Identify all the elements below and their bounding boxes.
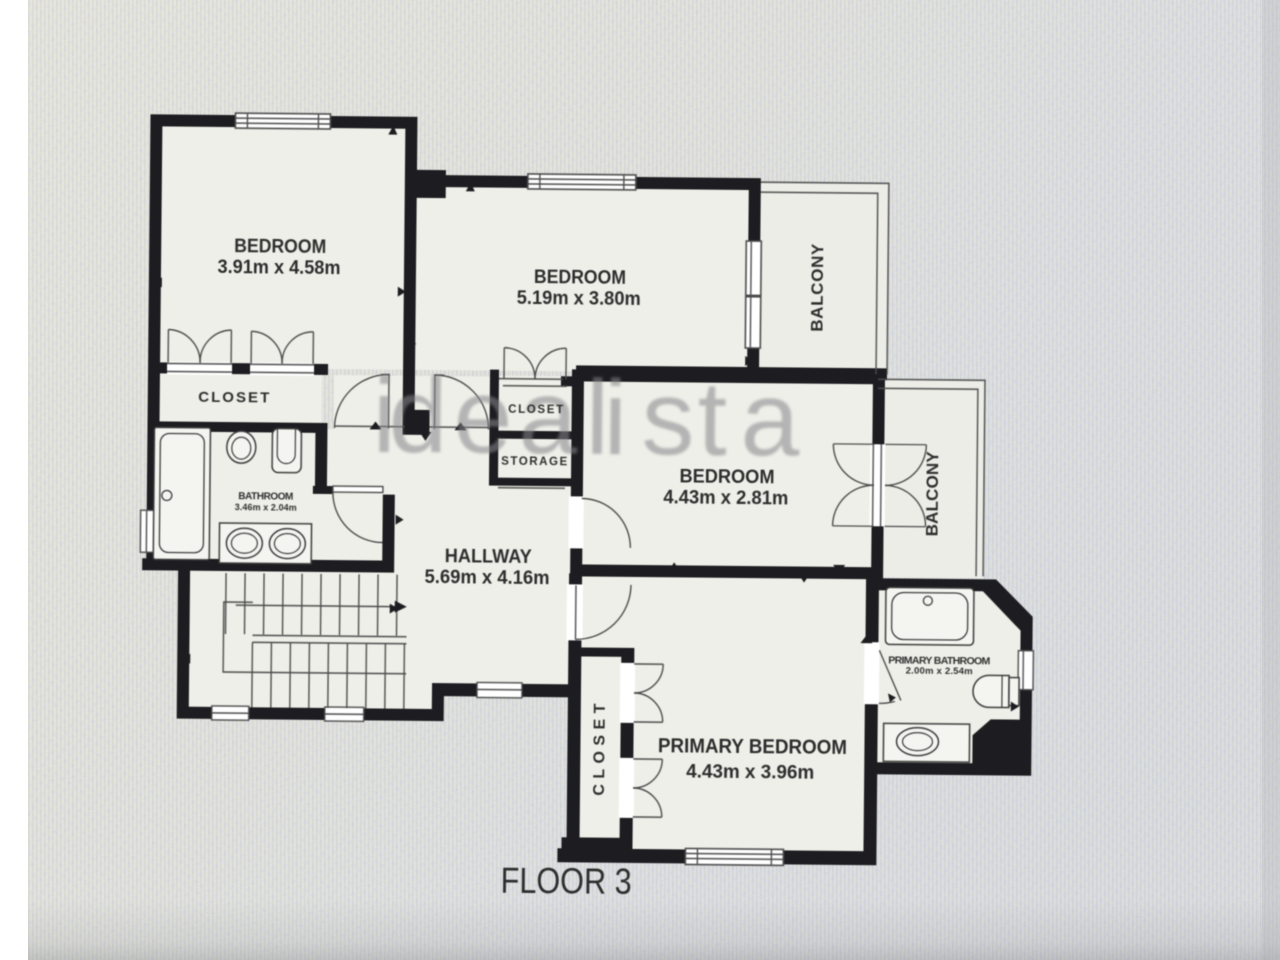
svg-text:BEDROOM: BEDROOM [534, 267, 626, 289]
svg-text:BATHROOM: BATHROOM [238, 491, 293, 503]
svg-text:BALCONY: BALCONY [922, 451, 942, 537]
svg-text:3.46m x 2.04m: 3.46m x 2.04m [235, 502, 297, 513]
svg-text:STORAGE: STORAGE [501, 456, 567, 469]
svg-text:5.19m x 3.80m: 5.19m x 3.80m [517, 288, 641, 310]
svg-text:3.91m x 4.58m: 3.91m x 4.58m [217, 257, 340, 279]
svg-text:4.43m x 3.96m: 4.43m x 3.96m [686, 761, 814, 783]
svg-text:HALLWAY: HALLWAY [445, 546, 533, 568]
svg-text:4.43m x 2.81m: 4.43m x 2.81m [663, 487, 788, 509]
svg-text:2.00m x 2.54m: 2.00m x 2.54m [906, 666, 973, 678]
svg-text:BALCONY: BALCONY [807, 243, 827, 332]
svg-text:5.69m x 4.16m: 5.69m x 4.16m [424, 567, 549, 589]
svg-text:PRIMARY BEDROOM: PRIMARY BEDROOM [658, 735, 847, 759]
svg-text:BEDROOM: BEDROOM [679, 466, 774, 488]
svg-text:BEDROOM: BEDROOM [234, 236, 326, 258]
svg-text:FLOOR 3: FLOOR 3 [500, 860, 631, 902]
